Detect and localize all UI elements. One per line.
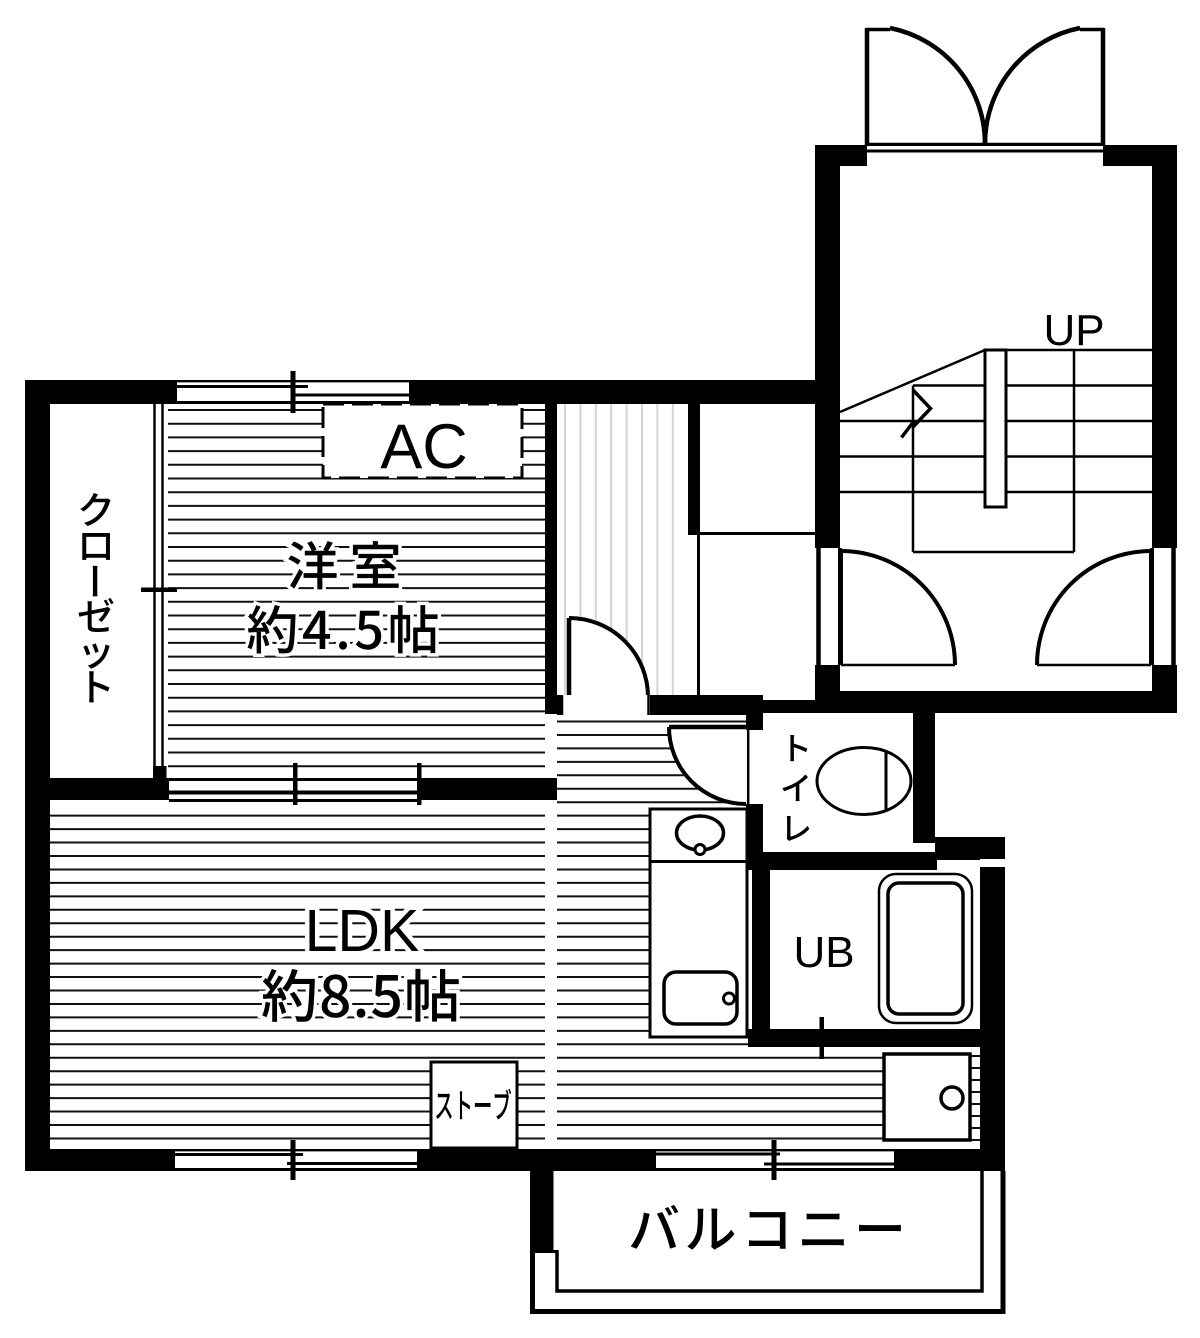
svg-text:AC: AC (380, 412, 468, 482)
svg-text:LDK: LDK (305, 898, 420, 964)
svg-text:UB: UB (793, 928, 854, 977)
svg-text:UP: UP (1043, 306, 1104, 355)
